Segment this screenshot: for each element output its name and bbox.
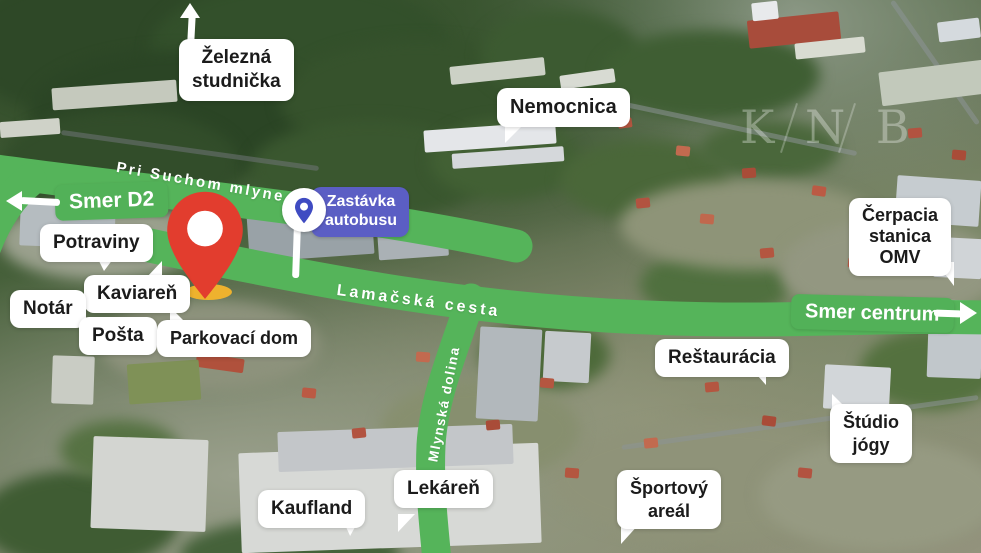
- place-label-zelezna-studnicka: Železná studnička: [179, 39, 294, 101]
- place-label-parkovaci-dom: Parkovací dom: [157, 320, 311, 357]
- direction-badge-smer-centrum: Smer centrum: [791, 294, 954, 333]
- place-label-line: Železná: [192, 46, 281, 70]
- arrow-right-shaft: [934, 310, 962, 318]
- direction-badge-smer-d2: Smer D2: [54, 181, 168, 221]
- bus-stop-marker: [282, 188, 326, 232]
- place-label-kaufland: Kaufland: [258, 490, 365, 528]
- location-pin-icon: [294, 197, 314, 224]
- place-label-line: Športový: [630, 477, 708, 500]
- place-label-line: jógy: [843, 434, 899, 457]
- place-label-nemocnica: Nemocnica: [497, 88, 630, 127]
- place-label-line: studnička: [192, 70, 281, 94]
- place-label-potraviny: Potraviny: [40, 224, 153, 262]
- place-label-notar: Notár: [10, 290, 86, 328]
- bus-stop-label-line1: Zastávka: [325, 193, 397, 212]
- bus-stop-label-line2: autobusu: [325, 212, 397, 231]
- place-label-posta: Pošta: [79, 317, 157, 355]
- place-label-sportovy-areal: Športový areál: [617, 470, 721, 529]
- map-canvas: K N B Pri Suchom mlyne Lamačská cesta Ml…: [0, 0, 981, 553]
- place-label-line: areál: [630, 500, 708, 523]
- place-label-line: Štúdio: [843, 411, 899, 434]
- place-label-cerpacia-stanica-omv: Čerpacia stanica OMV: [849, 198, 951, 276]
- place-label-restauracia: Reštaurácia: [655, 339, 789, 377]
- place-label-studio-jogy: Štúdio jógy: [830, 404, 912, 463]
- place-label-line: stanica: [862, 226, 938, 247]
- place-label-line: Čerpacia: [862, 205, 938, 226]
- place-label-kaviaren: Kaviareň: [84, 275, 190, 313]
- place-label-line: OMV: [862, 247, 938, 268]
- road-pri-suchom-mlyne-branch: [0, 180, 30, 260]
- place-label-lekaren: Lekáreň: [394, 470, 493, 508]
